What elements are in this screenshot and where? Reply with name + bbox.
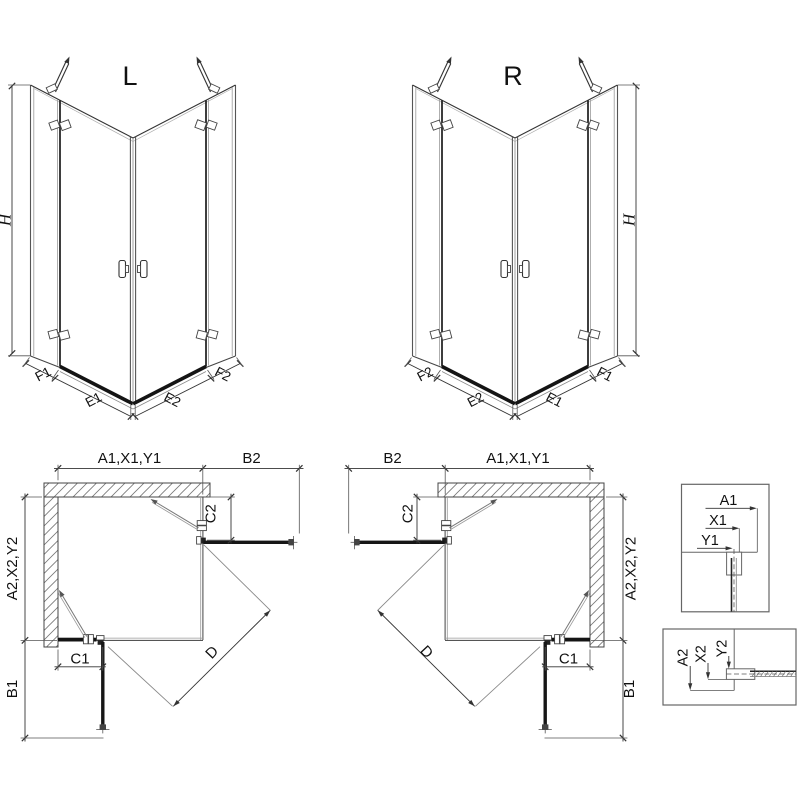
detail-profile-bottom: A2 X2 Y2 — [663, 629, 796, 705]
detail-dim-a1: A1 — [720, 493, 738, 509]
plan-right-geometry — [345, 465, 628, 742]
iso-view-left: L H F1 E1 E2 F2 — [0, 57, 243, 421]
dim-label-b1: B1 — [4, 680, 21, 698]
dim-label-a1x1y1: A1,X1,Y1 — [98, 450, 161, 467]
wall-side — [44, 497, 58, 647]
wall-top — [438, 483, 604, 497]
dim-label-a2x2y2: A2,X2,Y2 — [4, 537, 21, 600]
dim-label-d: D — [202, 643, 222, 663]
dim-label-d: D — [416, 642, 436, 662]
dim-label-c2: C2 — [399, 504, 416, 523]
wall-side — [590, 497, 604, 647]
dim-label-a2x2y2: A2,X2,Y2 — [622, 537, 639, 600]
dim-label-b2: B2 — [383, 450, 401, 467]
plan-left-geometry — [21, 465, 304, 742]
dim-label-f1: F1 — [33, 364, 54, 385]
dim-label-f2: F2 — [212, 364, 233, 385]
dim-label-b2: B2 — [242, 450, 260, 467]
dim-label-height: H — [0, 212, 14, 227]
detail-profile-top: A1 X1 Y1 — [682, 484, 770, 612]
wall-profile — [727, 552, 742, 575]
detail-dim-y2: Y2 — [714, 640, 730, 658]
plan-view-left: A1,X1,Y1 B2 A2,X2,Y2 B1 C2 C1 D — [4, 450, 304, 742]
wall-top — [44, 483, 210, 497]
technical-drawing-canvas: L H F1 E1 E2 F2 R H F2 E2 E1 F1 A1,X1,Y1… — [0, 0, 800, 800]
dim-label-c2: C2 — [202, 504, 219, 523]
dim-label-a1x1y1: A1,X1,Y1 — [486, 450, 549, 467]
plan-view-right: B2 A1,X1,Y1 A2,X2,Y2 B1 C2 C1 D — [345, 450, 640, 742]
detail-dim-y1: Y1 — [701, 533, 719, 549]
dim-label-c1: C1 — [70, 650, 89, 667]
dim-label-f1: F1 — [594, 364, 615, 385]
dim-label-b1: B1 — [621, 680, 638, 698]
dim-label-height: H — [619, 212, 638, 227]
detail-dim-a2: A2 — [675, 649, 691, 667]
dim-label-f2: F2 — [415, 364, 436, 385]
view-label-right: R — [503, 61, 523, 91]
view-label-left: L — [122, 61, 137, 91]
detail-dim-x2: X2 — [693, 645, 709, 663]
dim-label-c1: C1 — [559, 650, 578, 667]
iso-view-right: R H F2 E2 E1 F1 — [405, 57, 640, 421]
detail-dim-x1: X1 — [709, 513, 727, 529]
